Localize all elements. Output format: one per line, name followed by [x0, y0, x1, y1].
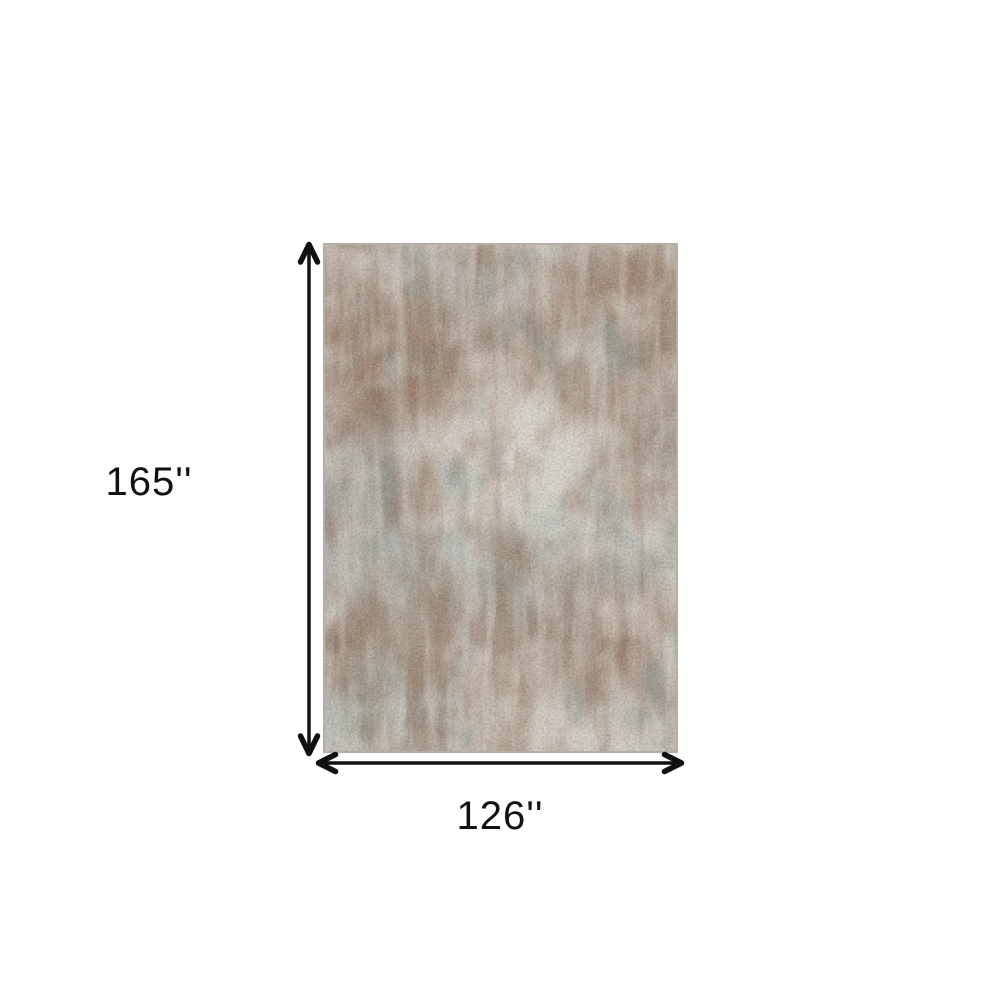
- height-dimension-arrow: [296, 240, 322, 758]
- product-dimension-diagram: 165'' 126'': [0, 0, 1000, 1000]
- rug-texture: [325, 245, 676, 751]
- height-dimension-label: 165'': [54, 462, 244, 502]
- width-dimension-label: 126'': [405, 796, 595, 836]
- width-dimension-arrow: [314, 750, 686, 776]
- rug-grain-light: [325, 245, 676, 751]
- rug-image: [323, 243, 678, 753]
